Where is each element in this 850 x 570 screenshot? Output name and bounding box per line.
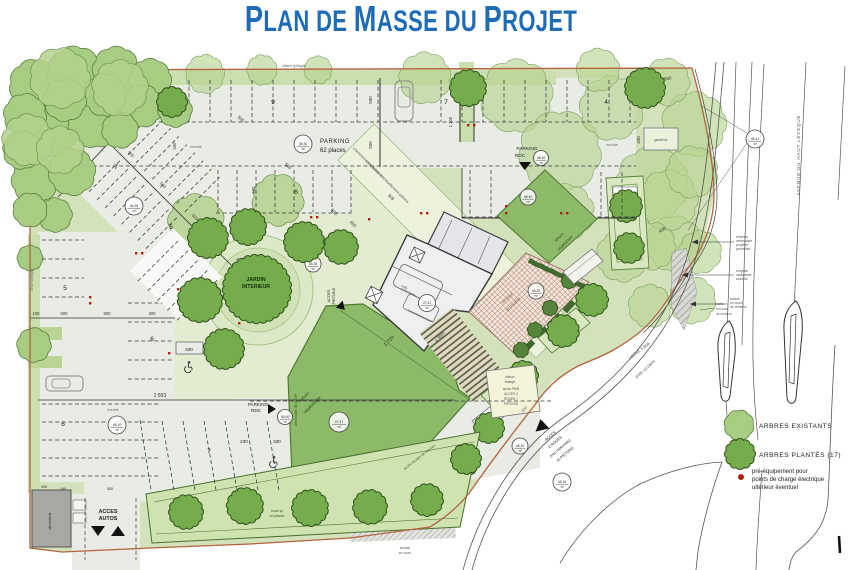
svg-text:2 893: 2 893 xyxy=(154,393,167,399)
svg-text:330: 330 xyxy=(185,347,193,352)
svg-text:550: 550 xyxy=(107,487,113,491)
svg-text:7: 7 xyxy=(114,164,118,171)
svg-text:6: 6 xyxy=(294,189,298,196)
svg-text:48.34: 48.34 xyxy=(558,480,567,484)
svg-text:sortie: sortie xyxy=(716,302,724,306)
svg-text:ngf: ngf xyxy=(753,141,757,145)
svg-text:PLAN DE MASSE DU PROJET: PLAN DE MASSE DU PROJET xyxy=(245,0,577,39)
svg-text:48.40: 48.40 xyxy=(524,195,533,199)
svg-text:INTERIEUR: INTERIEUR xyxy=(242,284,270,290)
svg-text:de création: de création xyxy=(730,305,747,309)
svg-text:ngf: ngf xyxy=(283,419,287,423)
svg-text:160: 160 xyxy=(60,487,66,491)
svg-text:noue sp: noue sp xyxy=(271,509,283,513)
svg-text:ACCES: ACCES xyxy=(327,289,331,303)
svg-text:48.35: 48.35 xyxy=(309,262,318,266)
svg-text:48.30: 48.30 xyxy=(299,142,308,146)
svg-text:ngf: ngf xyxy=(534,293,538,297)
svg-text:5: 5 xyxy=(63,285,67,292)
svg-text:surface: surface xyxy=(400,546,411,550)
svg-text:en places: en places xyxy=(270,514,285,518)
svg-text:ngf: ngf xyxy=(425,305,429,309)
svg-text:gardiens: gardiens xyxy=(654,138,667,142)
svg-text:100: 100 xyxy=(33,311,41,316)
svg-text:7: 7 xyxy=(444,99,448,106)
svg-text:9: 9 xyxy=(271,99,275,106)
svg-text:accessible dB ASVP: accessible dB ASVP xyxy=(294,393,298,426)
svg-text:ngf: ngf xyxy=(115,427,119,431)
svg-text:ngf: ngf xyxy=(301,146,305,150)
svg-text:ACCES 2: ACCES 2 xyxy=(504,392,518,396)
svg-text:RDC: RDC xyxy=(251,408,262,413)
svg-text:RDC: RDC xyxy=(515,153,526,159)
svg-text:1 100: 1 100 xyxy=(448,116,453,127)
svg-text:48.41: 48.41 xyxy=(751,137,760,141)
svg-text:46.35: 46.35 xyxy=(130,204,139,208)
svg-text:4: 4 xyxy=(604,99,608,106)
svg-text:clôture grillagée: clôture grillagée xyxy=(282,64,306,68)
svg-text:balayé: balayé xyxy=(505,380,516,384)
svg-text:déchetterie: déchetterie xyxy=(48,513,52,530)
svg-text:PARKING: PARKING xyxy=(248,402,269,407)
svg-text:accès PMR: accès PMR xyxy=(503,387,520,391)
svg-text:6: 6 xyxy=(61,421,65,428)
svg-text:AVENUE DU HAUT LEVEQUE: AVENUE DU HAUT LEVEQUE xyxy=(796,115,801,196)
svg-text:actuelle: actuelle xyxy=(736,277,748,281)
svg-text:enrobé: enrobé xyxy=(190,145,201,149)
svg-text:ngf: ngf xyxy=(526,199,530,203)
svg-text:ROUES +: ROUES + xyxy=(504,397,518,401)
svg-text:points de charge électrique: points de charge électrique xyxy=(752,477,825,483)
svg-text:enrobé: enrobé xyxy=(606,143,617,147)
svg-text:PARKING: PARKING xyxy=(516,146,538,152)
svg-text:500: 500 xyxy=(368,141,373,149)
svg-text:440: 440 xyxy=(41,485,47,489)
svg-text:ultérieur éventuel: ultérieur éventuel xyxy=(752,485,798,491)
svg-text:48.20: 48.20 xyxy=(532,289,541,293)
svg-text:47.47: 47.47 xyxy=(423,301,432,305)
svg-text:de création: de création xyxy=(716,312,732,316)
svg-text:ngf: ngf xyxy=(560,484,564,488)
svg-text:330: 330 xyxy=(273,439,281,444)
svg-text:48.10: 48.10 xyxy=(113,423,122,427)
svg-text:ngf: ngf xyxy=(539,160,543,164)
svg-text:ngf: ngf xyxy=(518,448,522,452)
svg-text:en cours: en cours xyxy=(399,551,412,555)
svg-text:ngf: ngf xyxy=(311,266,315,270)
svg-text:ngf: ngf xyxy=(132,208,136,212)
svg-text:ACCES: ACCES xyxy=(99,509,118,515)
svg-text:prévisible: prévisible xyxy=(736,247,750,251)
svg-text:500: 500 xyxy=(368,96,373,104)
svg-text:300: 300 xyxy=(149,311,157,316)
svg-text:48.20: 48.20 xyxy=(516,444,525,448)
svg-text:enrobé: enrobé xyxy=(107,408,118,412)
svg-text:500: 500 xyxy=(172,142,177,150)
svg-text:ARBRES EXISTANTS: ARBRES EXISTANTS xyxy=(759,423,832,430)
svg-text:PIETONS: PIETONS xyxy=(504,402,518,406)
svg-text:5: 5 xyxy=(169,224,173,231)
svg-text:en cours: en cours xyxy=(716,307,729,311)
svg-text:48.40: 48.40 xyxy=(537,156,546,160)
svg-text:500: 500 xyxy=(251,186,256,194)
svg-text:AUTOS: AUTOS xyxy=(99,516,118,522)
svg-text:ARBRES PLANTÉS (17): ARBRES PLANTÉS (17) xyxy=(759,450,841,459)
svg-text:JARDIN: JARDIN xyxy=(246,277,266,283)
svg-text:6: 6 xyxy=(150,336,154,343)
svg-text:47.47: 47.47 xyxy=(335,420,344,424)
svg-text:230: 230 xyxy=(240,439,248,444)
svg-text:béton: béton xyxy=(506,375,515,379)
svg-text:PARKING: PARKING xyxy=(320,139,350,145)
svg-text:PIETONS: PIETONS xyxy=(332,287,336,304)
svg-text:500: 500 xyxy=(61,311,69,316)
svg-text:ngf: ngf xyxy=(337,424,341,428)
svg-text:pré-équipement pour: pré-équipement pour xyxy=(752,469,808,475)
svg-text:48.60: 48.60 xyxy=(281,415,290,419)
svg-text:62 places: 62 places xyxy=(320,148,346,154)
svg-text:500: 500 xyxy=(104,311,112,316)
svg-text:7: 7 xyxy=(207,448,211,455)
svg-text:400: 400 xyxy=(636,136,641,144)
